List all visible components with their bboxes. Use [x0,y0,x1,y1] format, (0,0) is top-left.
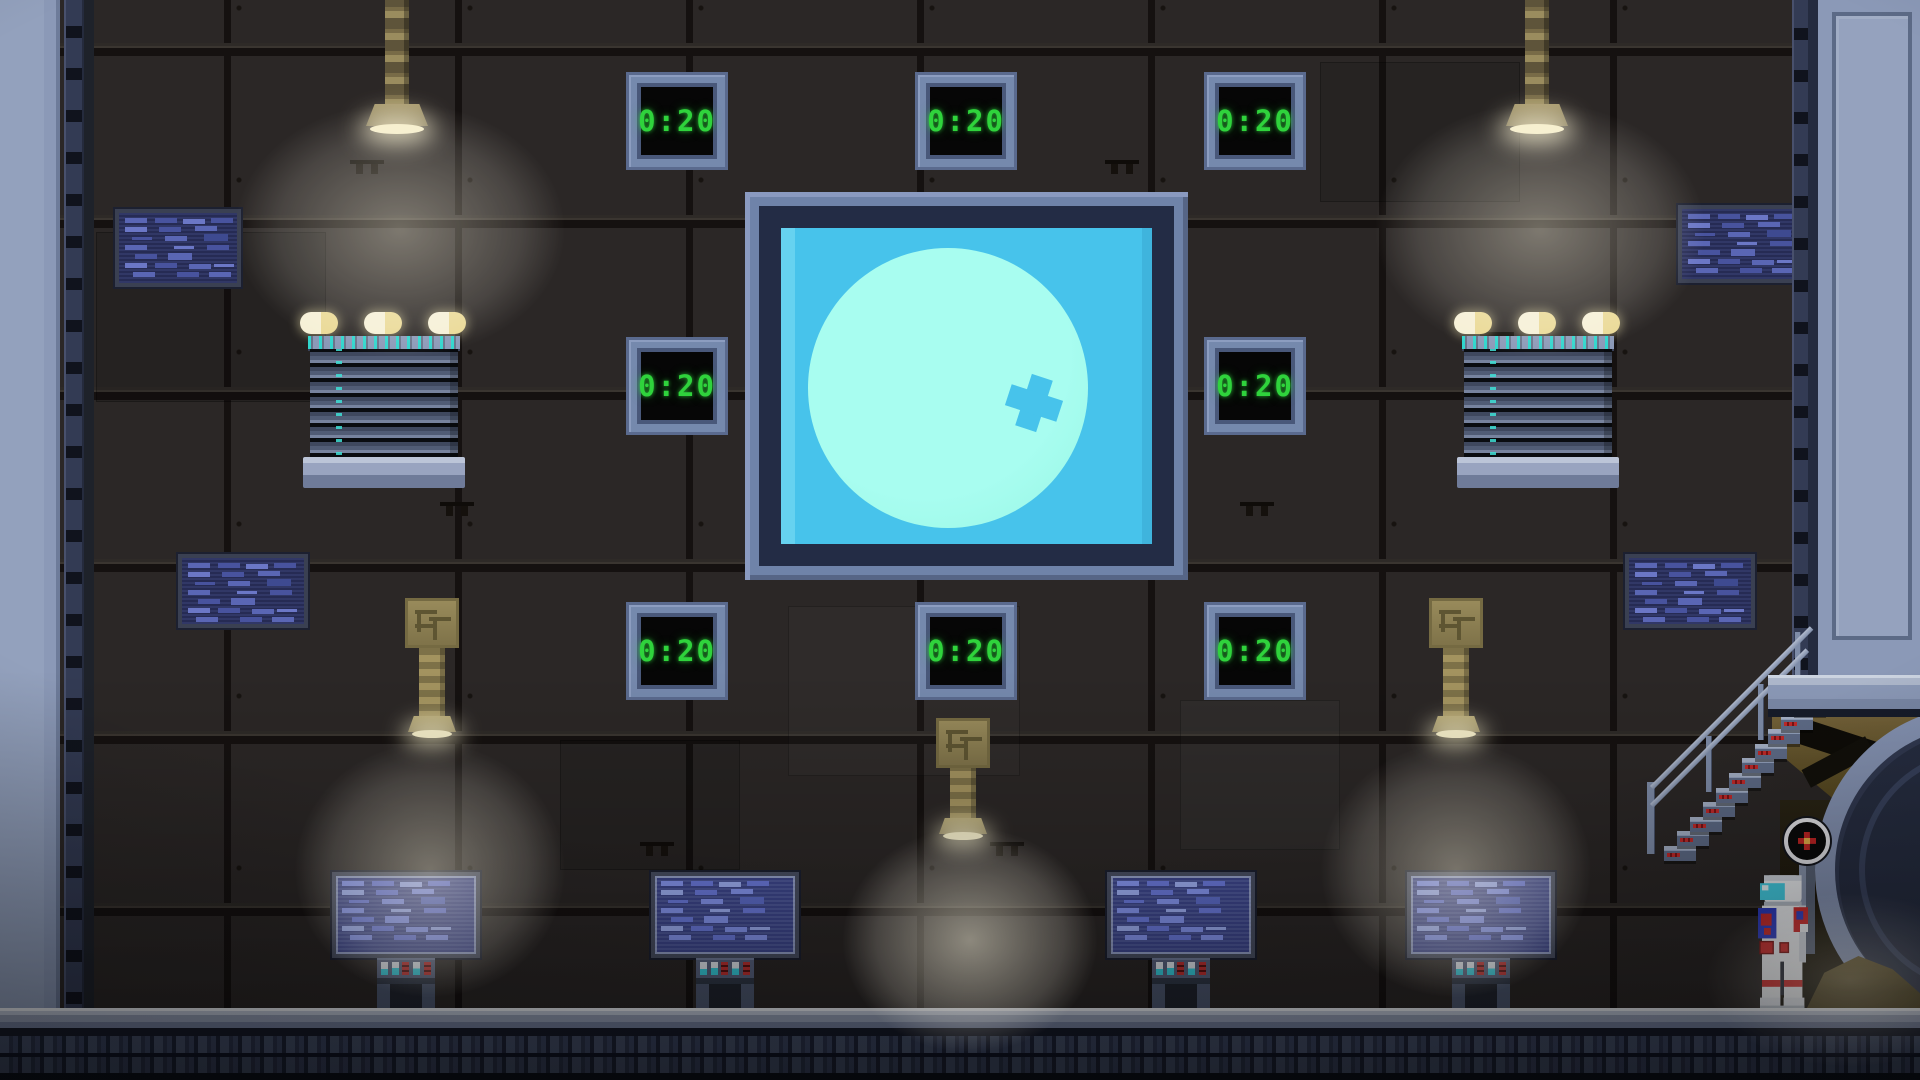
lamp-mount-plate [936,718,990,768]
wall-monitor[interactable] [115,209,241,287]
station-pedestal[interactable] [1152,958,1210,1012]
rack-led-strip [336,349,342,457]
lamp-pole [950,768,976,820]
stair-landing-platform [1768,675,1920,709]
pedestal-legs [696,978,754,1012]
game-scene[interactable]: 0:20 0:20 0:20 0:20 0:20 0:20 0:20 0:20 [0,0,1920,1080]
wall-lamp [936,718,990,842]
monitor-screen [119,213,237,283]
timer-screen: 0:20 [637,83,717,159]
monitor-screen [1111,876,1251,954]
countdown-timer-top-left: 0:20 [626,72,728,170]
stair-step [1716,788,1748,803]
stair-step [1729,773,1761,788]
ceiling-lamp [366,0,428,136]
valve-gauge-icon[interactable] [1784,818,1830,864]
timer-value: 0:20 [1216,634,1294,668]
left-column-shadow [84,0,94,1010]
wall-pipe-connector [1105,160,1139,174]
countdown-timer-bottom-center: 0:20 [915,602,1017,700]
rack-light [1518,312,1556,334]
lamp-pole [419,648,445,718]
countdown-timer-top-right: 0:20 [1204,72,1306,170]
timer-value: 0:20 [638,104,716,138]
window-sky [781,228,1152,544]
monitor-screen [182,558,304,624]
pedestal-legs [1152,978,1210,1012]
monitor-screen [336,876,476,954]
timer-screen: 0:20 [1215,613,1295,689]
wall-panel-patch [1320,62,1520,202]
control-station[interactable] [1407,872,1555,1012]
countdown-timer-bottom-right: 0:20 [1204,602,1306,700]
rack-light [428,312,466,334]
floor-bottom-edge [0,1073,1920,1080]
wall-pipe-connector [640,842,674,856]
indicator-lights [1452,958,1510,978]
lamp-pole [1443,648,1469,718]
astronaut-character[interactable] [1756,872,1816,1012]
timer-screen: 0:20 [637,348,717,424]
railing-post [1647,782,1654,854]
server-rack[interactable] [1454,310,1620,488]
gauge-center-dot [1804,838,1810,844]
timer-value: 0:20 [638,369,716,403]
timer-screen: 0:20 [926,613,1006,689]
floor-slats [0,1036,1920,1053]
right-column-panel [1832,12,1912,640]
stair-step [1781,715,1813,730]
rack-top-bar [1462,336,1614,349]
countdown-timer-bottom-left: 0:20 [626,602,728,700]
rack-slats [1464,349,1612,457]
station-pedestal[interactable] [1452,958,1510,1012]
lamp-bulb [1436,730,1476,738]
lamp-shade [366,104,428,126]
floor-platform [0,1008,1920,1028]
wall-lamp [405,598,459,742]
control-station[interactable] [1107,872,1255,1012]
rack-light [1454,312,1492,334]
lamp-mount-plate [405,598,459,648]
rack-base [303,457,465,488]
lamp-chain [1525,0,1549,106]
countdown-timer-mid-right: 0:20 [1204,337,1306,435]
rack-slats [310,349,458,457]
timer-value: 0:20 [927,634,1005,668]
rack-led-strip [1490,349,1496,457]
lamp-bulb [412,730,452,738]
stair-step [1664,846,1696,861]
stair-step [1742,758,1774,773]
timer-value: 0:20 [1216,104,1294,138]
monitor-screen [1411,876,1551,954]
lamp-mount-plate [1429,598,1483,648]
floor-slats [0,1057,1920,1073]
pedestal-legs [1452,978,1510,1012]
monitor-screen [1629,558,1751,624]
moon [808,248,1088,528]
station-pedestal[interactable] [696,958,754,1012]
stair-step [1768,729,1800,744]
timer-screen: 0:20 [1215,348,1295,424]
station-monitor[interactable] [332,872,480,958]
rack-light [300,312,338,334]
timer-screen: 0:20 [637,613,717,689]
lamp-bulb [1510,124,1564,134]
stair-step [1690,817,1722,832]
station-pedestal[interactable] [377,958,435,1012]
left-column-rivets [64,0,84,1010]
timer-screen: 0:20 [1215,83,1295,159]
server-rack[interactable] [300,310,466,488]
stair-step [1755,744,1787,759]
rack-light [1582,312,1620,334]
ceiling-lamp [1506,0,1568,136]
stair-step [1677,831,1709,846]
rack-light [364,312,402,334]
wall-panel-patch [1180,700,1340,850]
moon-crater-icon [1015,374,1053,432]
wall-pipe-connector [350,160,384,174]
timer-value: 0:20 [638,634,716,668]
lamp-chain [385,0,409,106]
timer-screen: 0:20 [926,83,1006,159]
control-station[interactable] [332,872,480,1012]
monitor-screen [655,876,795,954]
wall-monitor[interactable] [178,554,308,628]
wall-pipe-connector [1240,502,1274,516]
pedestal-legs [377,978,435,1012]
landing-shadow [1768,709,1920,717]
countdown-timer-top-center: 0:20 [915,72,1017,170]
wall-monitor[interactable] [1625,554,1755,628]
monitor-screen [1682,209,1800,279]
right-column-groove [1808,0,1818,676]
right-wall-column [1818,0,1920,708]
station-monitor[interactable] [651,872,799,958]
wall-pipe-connector [440,502,474,516]
timer-value: 0:20 [927,104,1005,138]
wall-monitor[interactable] [1678,205,1804,283]
lamp-bulb [370,124,424,134]
control-station[interactable] [651,872,799,1012]
station-monitor[interactable] [1407,872,1555,958]
stair-step [1703,802,1735,817]
lamp-shade [1506,104,1568,126]
observation-window [745,192,1188,580]
countdown-timer-mid-left: 0:20 [626,337,728,435]
floor-gap [0,1028,1920,1036]
wall-lamp [1429,598,1483,742]
indicator-lights [377,958,435,978]
indicator-lights [696,958,754,978]
lamp-bulb [943,832,983,840]
station-monitor[interactable] [1107,872,1255,958]
window-inner-frame [759,206,1174,566]
left-wall-column [0,0,60,1010]
indicator-lights [1152,958,1210,978]
wall-pipe-connector [990,842,1024,856]
rack-top-bar [308,336,460,349]
rack-base [1457,457,1619,488]
timer-value: 0:20 [1216,369,1294,403]
